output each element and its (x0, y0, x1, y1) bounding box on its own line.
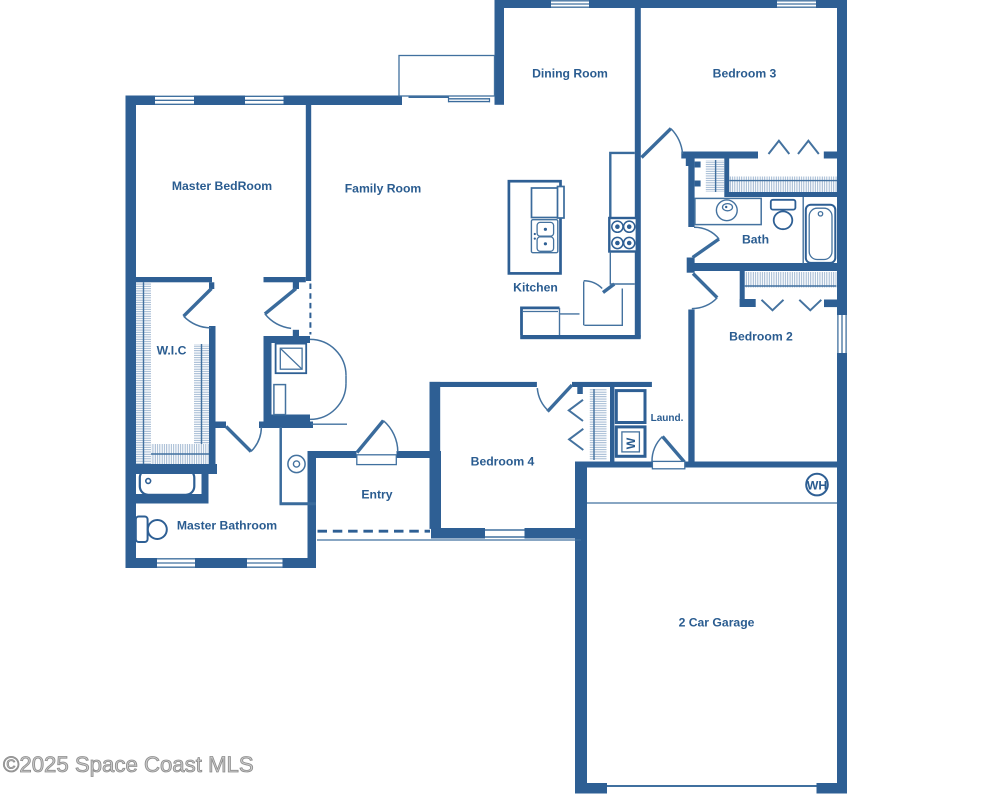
svg-text:Bedroom 2: Bedroom 2 (729, 330, 793, 344)
svg-text:©2025 Space Coast MLS: ©2025 Space Coast MLS (3, 752, 254, 777)
svg-text:Dining Room: Dining Room (532, 67, 608, 81)
svg-text:W.I.C: W.I.C (157, 344, 187, 358)
svg-text:WH: WH (807, 478, 827, 492)
svg-text:2 Car Garage: 2 Car Garage (679, 616, 755, 630)
svg-text:Kitchen: Kitchen (513, 281, 558, 295)
svg-text:Bedroom 4: Bedroom 4 (471, 455, 535, 469)
svg-text:Master Bathroom: Master Bathroom (177, 519, 277, 533)
svg-text:Family Room: Family Room (345, 182, 422, 196)
svg-text:Bedroom 3: Bedroom 3 (713, 67, 777, 81)
svg-text:Entry: Entry (361, 488, 392, 502)
svg-text:Master BedRoom: Master BedRoom (172, 179, 272, 193)
svg-text:Bath: Bath (742, 233, 769, 247)
svg-text:Laund.: Laund. (651, 413, 684, 424)
svg-text:W: W (624, 437, 638, 449)
